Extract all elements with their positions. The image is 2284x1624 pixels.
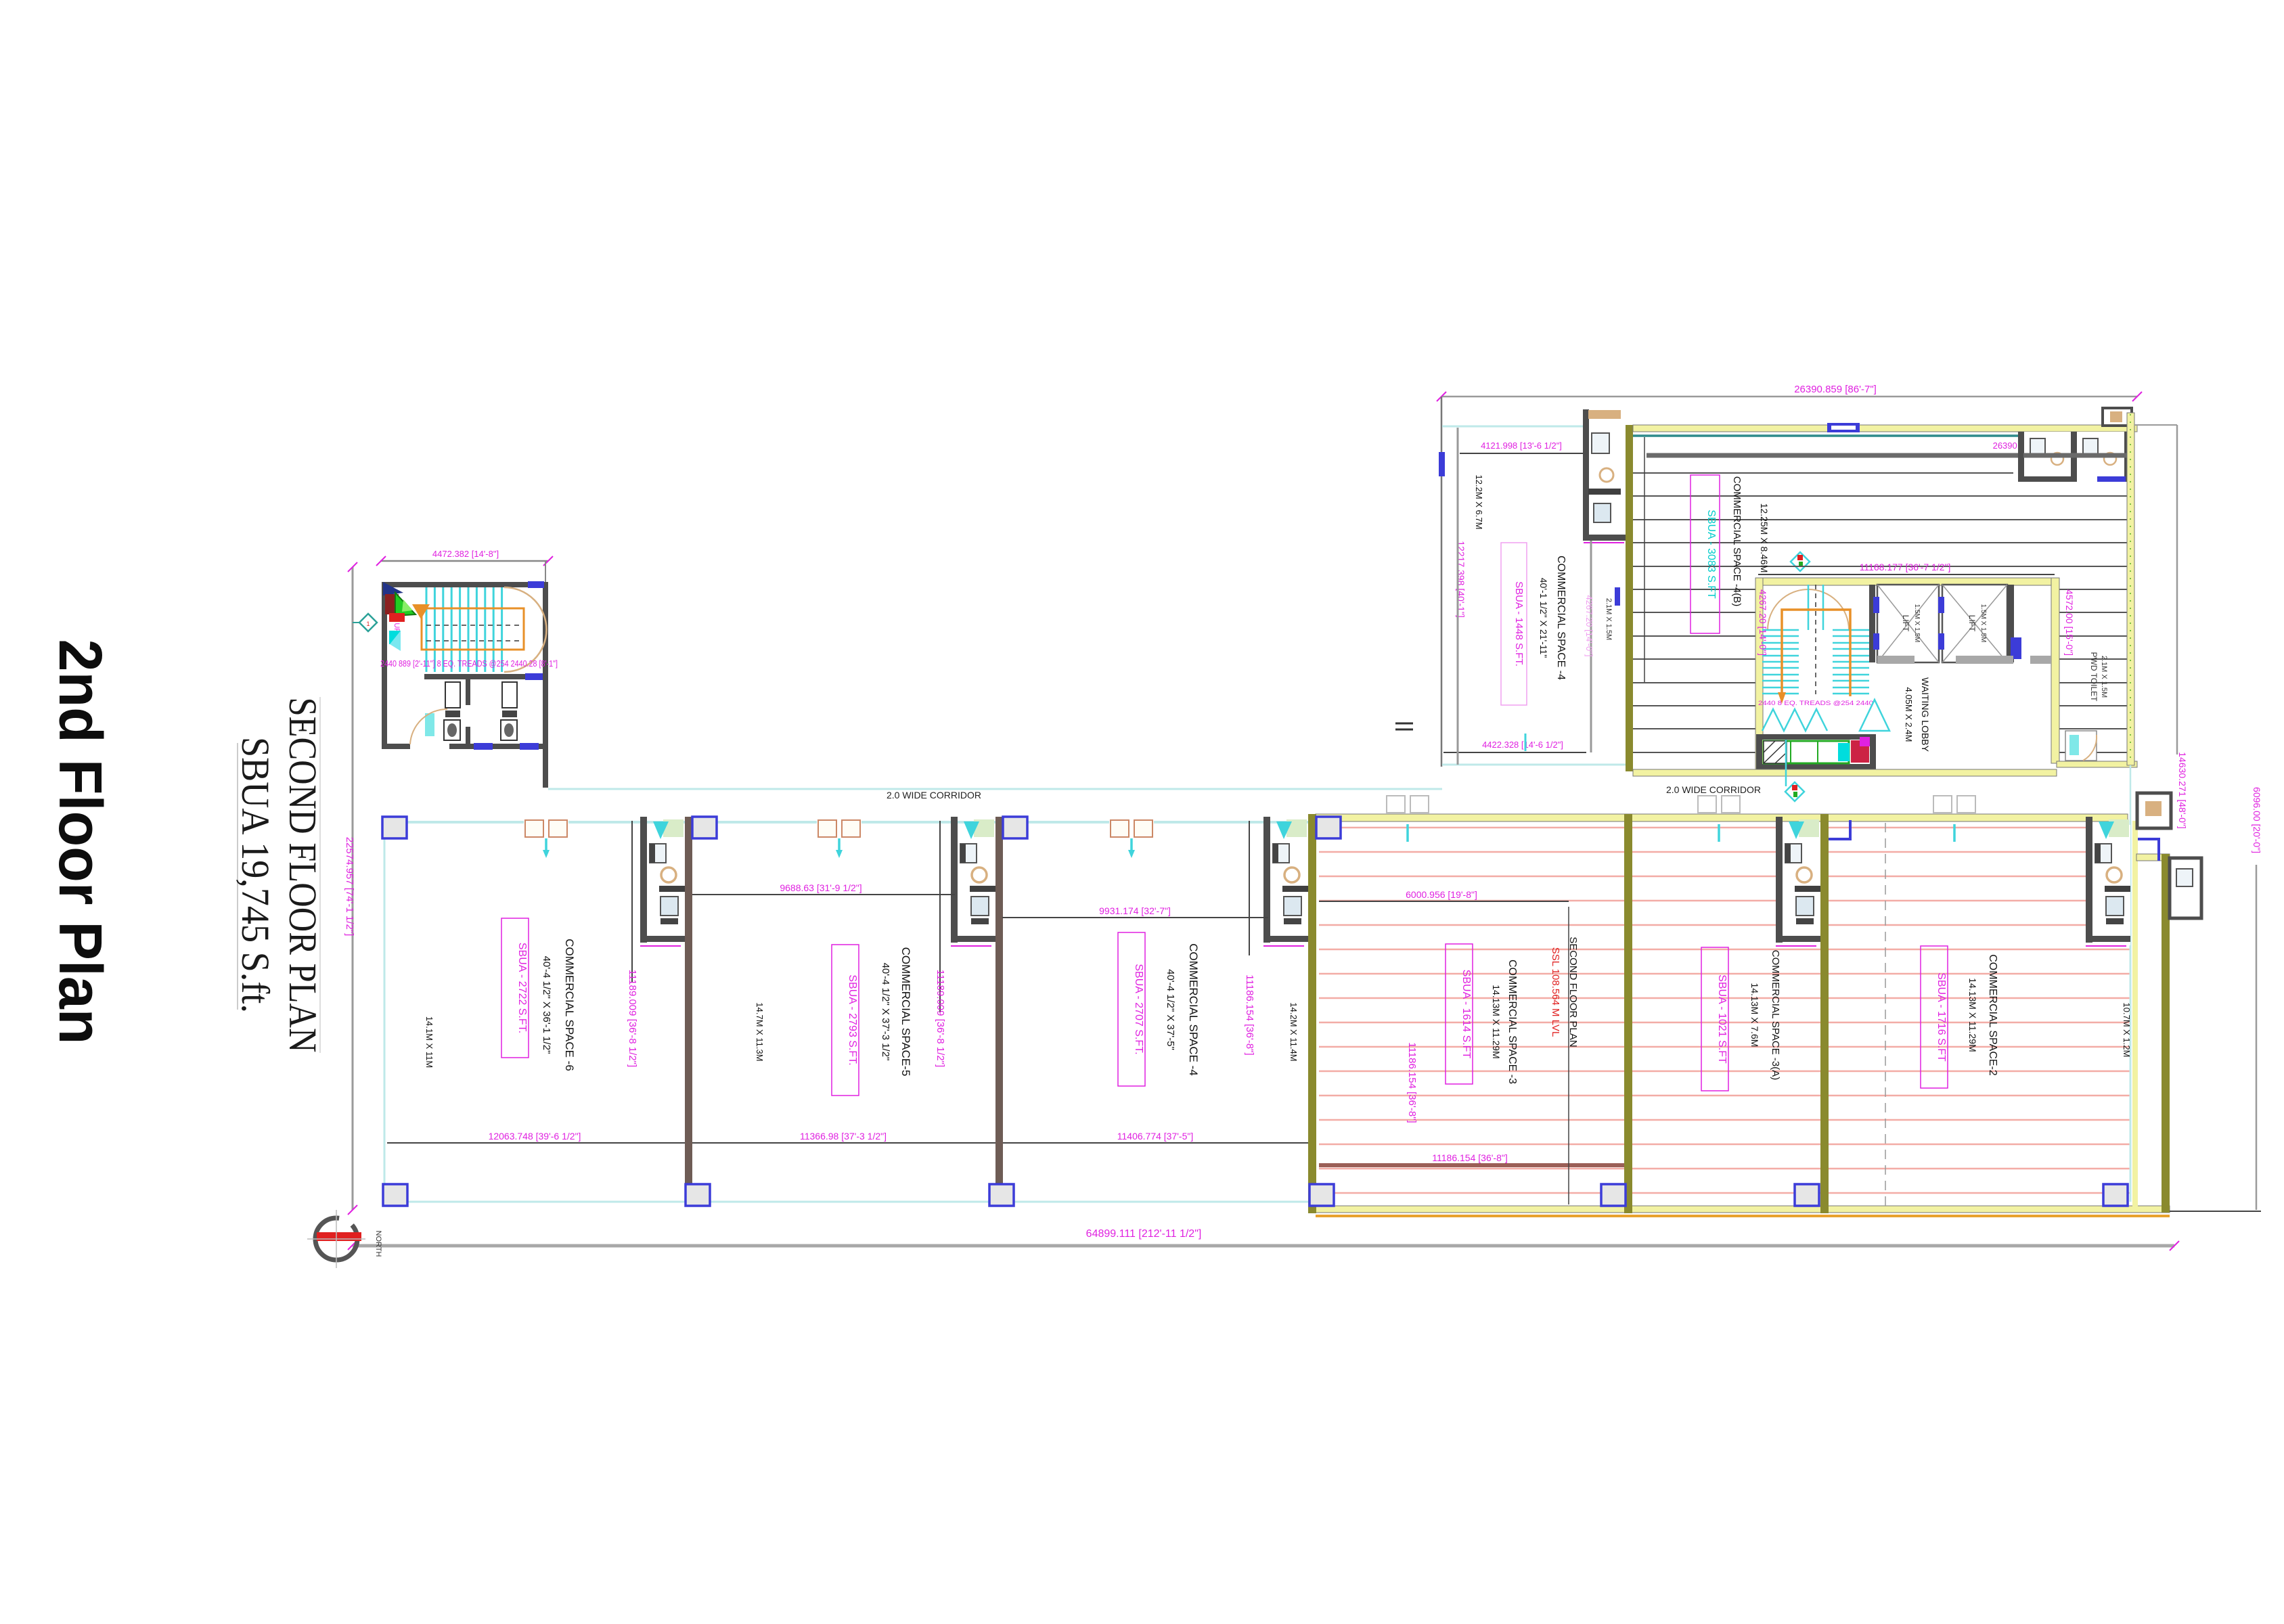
svg-text:NORTH: NORTH (374, 1231, 382, 1257)
svg-text:2.0 WIDE CORRIDOR: 2.0 WIDE CORRIDOR (887, 790, 981, 800)
svg-text:12.2M X 6.7M: 12.2M X 6.7M (1474, 475, 1484, 530)
svg-text:SBUA 19,745 S.ft.: SBUA 19,745 S.ft. (233, 737, 277, 1013)
svg-text:LIFT: LIFT (1901, 615, 1910, 632)
svg-text:SBUA - 2707 S.FT.: SBUA - 2707 S.FT. (1133, 964, 1144, 1054)
svg-text:SBUA - 2722 S.FT.: SBUA - 2722 S.FT. (516, 943, 528, 1033)
svg-text:11189.009 [36'-8 1/2"]: 11189.009 [36'-8 1/2"] (627, 970, 638, 1067)
svg-text:14.2M X 11.4M: 14.2M X 11.4M (1289, 1002, 1299, 1061)
svg-text:11186.154 [36'-8"]: 11186.154 [36'-8"] (1432, 1152, 1507, 1163)
svg-text:4267.20 [14'-0"]: 4267.20 [14'-0"] (1584, 595, 1594, 657)
svg-text:4472.382 [14'-8"]: 4472.382 [14'-8"] (432, 549, 499, 559)
svg-text:4572.00 [15'-0"]: 4572.00 [15'-0"] (2064, 589, 2075, 656)
svg-text:2.1M X 1.5M: 2.1M X 1.5M (2100, 656, 2108, 698)
svg-text:2440 8 EQ. TREADS @254 2440: 2440 8 EQ. TREADS @254 2440 (1758, 700, 1873, 706)
svg-text:14.7M X 11.3M: 14.7M X 11.3M (755, 1002, 765, 1061)
svg-text:SBUA - 2793 S.FT.: SBUA - 2793 S.FT. (847, 974, 858, 1065)
svg-text:2nd Floor Plan: 2nd Floor Plan (46, 639, 114, 1045)
svg-text:SECOND FLOOR PLAN: SECOND FLOOR PLAN (1567, 937, 1579, 1047)
svg-text:40'-4 1/2" X 36'-1 1/2": 40'-4 1/2" X 36'-1 1/2" (541, 956, 552, 1054)
svg-text:WAITING LOBBY: WAITING LOBBY (1920, 677, 1931, 752)
svg-text:4267.20 [14'-0"]: 4267.20 [14'-0"] (1757, 589, 1768, 656)
svg-text:11189.009 [36'-8 1/2"]: 11189.009 [36'-8 1/2"] (935, 970, 946, 1067)
svg-text:COMMERCIAL SPACE -3(A): COMMERCIAL SPACE -3(A) (1770, 950, 1781, 1081)
svg-text:6000.956 [19'-8"]: 6000.956 [19'-8"] (1406, 889, 1477, 900)
svg-text:22574.957 [74'-1 1/2"]: 22574.957 [74'-1 1/2"] (344, 837, 355, 937)
svg-text:1.5M X 1.5M: 1.5M X 1.5M (1913, 604, 1921, 643)
svg-text:2.1M X 1.5M: 2.1M X 1.5M (1605, 598, 1613, 640)
svg-text:11366.98 [37'-3 1/2"]: 11366.98 [37'-3 1/2"] (800, 1131, 887, 1142)
svg-text:11186.154 [36'-8"]: 11186.154 [36'-8"] (1244, 974, 1255, 1055)
svg-text:2.0 WIDE CORRIDOR: 2.0 WIDE CORRIDOR (1666, 784, 1761, 795)
svg-text:COMMERCIAL SPACE -6: COMMERCIAL SPACE -6 (563, 939, 576, 1071)
svg-text:SECOND FLOOR PLAN: SECOND FLOOR PLAN (281, 698, 325, 1053)
svg-text:40'-4 1/2" X 37'-5": 40'-4 1/2" X 37'-5" (1165, 969, 1176, 1050)
svg-text:14630.271 [48'-0"]: 14630.271 [48'-0"] (2177, 752, 2188, 829)
svg-text:4.05M X 2.4M: 4.05M X 2.4M (1904, 687, 1914, 742)
svg-text:14.13M X 11.29M: 14.13M X 11.29M (1491, 985, 1502, 1058)
svg-text:SBUA - 1448 S.FT.: SBUA - 1448 S.FT. (1513, 581, 1525, 667)
svg-text:SBUA - 1614 S.FT: SBUA - 1614 S.FT (1460, 970, 1472, 1059)
svg-text:12.25M X 8.46M: 12.25M X 8.46M (1759, 503, 1770, 573)
svg-text:SBUA - 3083 S.FT: SBUA - 3083 S.FT (1705, 510, 1717, 599)
svg-text:2440 889 [2'-11"] 8 EQ. TREAD: 2440 889 [2'-11"] 8 EQ. TREADS @254 2440… (380, 658, 558, 669)
svg-text:9688.63 [31'-9 1/2"]: 9688.63 [31'-9 1/2"] (780, 882, 861, 893)
svg-text:PWD TOILET: PWD TOILET (2089, 652, 2099, 702)
svg-text:4121.998 [13'-6 1/2"]: 4121.998 [13'-6 1/2"] (1481, 441, 1562, 451)
svg-text:14.13M X 7.6M: 14.13M X 7.6M (1749, 983, 1760, 1047)
svg-text:1: 1 (366, 621, 370, 627)
svg-text:COMMERCIAL SPACE -3: COMMERCIAL SPACE -3 (1506, 960, 1518, 1084)
svg-text:SBUA - 1021 S.FT: SBUA - 1021 S.FT (1716, 974, 1728, 1064)
svg-text:40'-4 1/2" X 37'-3 1/2": 40'-4 1/2" X 37'-3 1/2" (880, 963, 891, 1061)
svg-text:14.13M X 11.29M: 14.13M X 11.29M (1967, 978, 1978, 1052)
svg-text:COMMERCIAL SPACE -4(B): COMMERCIAL SPACE -4(B) (1731, 476, 1743, 607)
svg-text:COMMERCIAL SPACE -4: COMMERCIAL SPACE -4 (1555, 556, 1567, 680)
svg-text:SSL 108.564 M LVL: SSL 108.564 M LVL (1550, 947, 1561, 1037)
svg-text:SBUA - 1716 S.FT: SBUA - 1716 S.FT (1935, 972, 1947, 1062)
svg-text:6096.00 [20'-0"]: 6096.00 [20'-0"] (2252, 787, 2262, 853)
svg-text:11186.154 [36'-8"]: 11186.154 [36'-8"] (1406, 1042, 1418, 1123)
svg-text:9931.174 [32'-7"]: 9931.174 [32'-7"] (1099, 905, 1171, 916)
svg-text:COMMERCIAL SPACE-2: COMMERCIAL SPACE-2 (1987, 954, 1998, 1076)
svg-text:64899.111 [212'-11 1/2"]: 64899.111 [212'-11 1/2"] (1086, 1228, 1202, 1240)
svg-text:COMMERCIAL SPACE -4: COMMERCIAL SPACE -4 (1187, 943, 1200, 1076)
svg-text:11406.774 [37'-5"]: 11406.774 [37'-5"] (1117, 1131, 1193, 1142)
svg-text:11168.177 [36'-7 1/2"]: 11168.177 [36'-7 1/2"] (1860, 562, 1951, 572)
svg-text:26390.859 [86'-7"]: 26390.859 [86'-7"] (1794, 384, 1877, 395)
svg-text:1.5M X 1.5M: 1.5M X 1.5M (1979, 604, 1987, 643)
svg-text:LIFT: LIFT (1967, 615, 1977, 632)
svg-text:14.1M X 11M: 14.1M X 11M (424, 1016, 434, 1068)
svg-text:4422.328 [14'-6 1/2"]: 4422.328 [14'-6 1/2"] (1482, 740, 1563, 750)
svg-text:COMMERCIAL SPACE-5: COMMERCIAL SPACE-5 (899, 947, 912, 1077)
svg-text:12063.748 [39'-6 1/2"]: 12063.748 [39'-6 1/2"] (489, 1131, 581, 1142)
svg-text:40'-1 1/2" X 21'-11": 40'-1 1/2" X 21'-11" (1538, 578, 1549, 658)
svg-text:10.7M X 1.2M: 10.7M X 1.2M (2122, 1003, 2132, 1058)
